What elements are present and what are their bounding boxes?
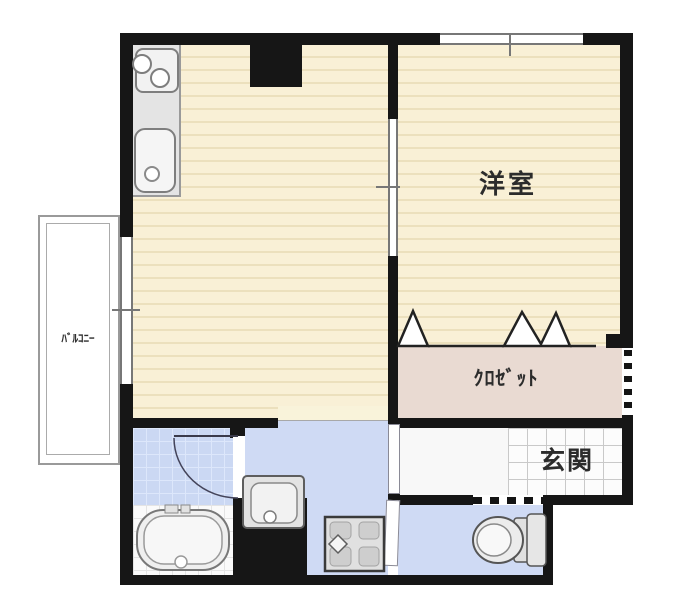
western-room-label: 洋室 bbox=[450, 170, 566, 199]
stove-icon bbox=[133, 49, 178, 92]
closet-folding-door-icon bbox=[398, 311, 596, 346]
closet-label: ｸﾛｾﾞｯﾄ bbox=[420, 368, 592, 390]
balcony-label: ﾊﾞﾙｺﾆｰ bbox=[40, 333, 116, 345]
bathtub-icon bbox=[137, 505, 229, 570]
fixtures-layer bbox=[0, 0, 700, 613]
toilet-icon bbox=[473, 514, 546, 566]
floorplan-canvas: 洋室 ｸﾛｾﾞｯﾄ 玄関 ﾊﾞﾙｺﾆｰ bbox=[0, 0, 700, 613]
washing-machine-pan-icon bbox=[325, 517, 384, 571]
bathroom-door-arc bbox=[174, 436, 238, 498]
washbasin-icon bbox=[243, 476, 304, 528]
kitchen-sink-icon bbox=[135, 129, 175, 192]
entrance-label: 玄関 bbox=[517, 448, 617, 476]
